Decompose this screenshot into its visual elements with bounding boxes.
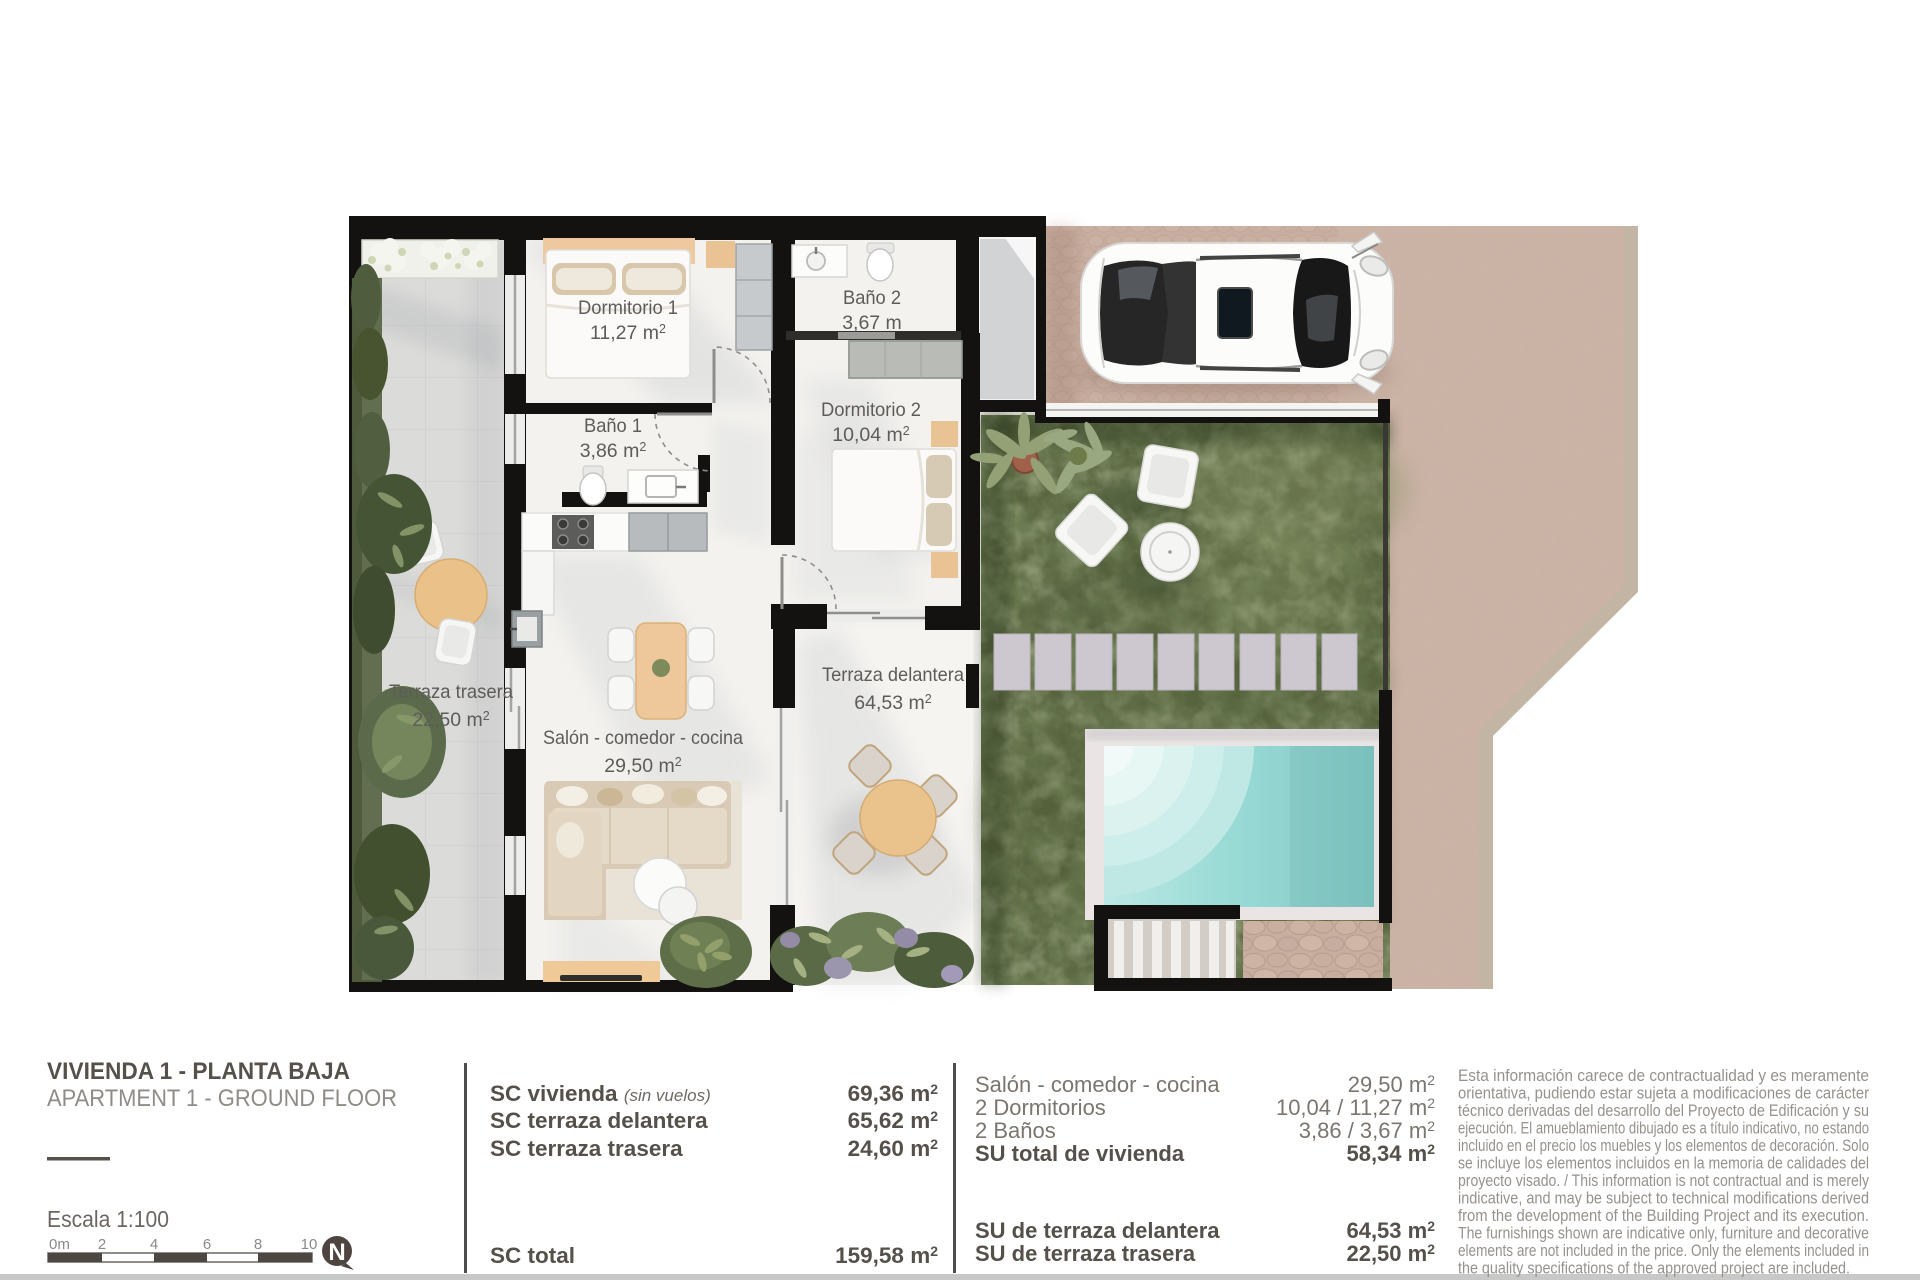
svg-text:2: 2 [98, 1236, 106, 1253]
svg-text:elements are not included in t: elements are not included in the price. … [1458, 1242, 1869, 1260]
svg-text:SC total: SC total [490, 1243, 575, 1268]
svg-text:Terraza delantera: Terraza delantera [822, 664, 964, 686]
svg-text:Terraza trasera: Terraza trasera [389, 681, 513, 703]
svg-text:29,50 m2: 29,50 m2 [604, 755, 681, 777]
svg-text:2 Baños: 2 Baños [975, 1118, 1056, 1143]
svg-text:técnico derivadas del desarrol: técnico derivadas del desarrollo del Pro… [1458, 1102, 1869, 1120]
svg-text:orientativa, pudiendo estar su: orientativa, pudiendo estar sujeta a mod… [1458, 1085, 1870, 1103]
svg-text:64,53 m2: 64,53 m2 [1346, 1218, 1435, 1243]
svg-text:58,34 m2: 58,34 m2 [1346, 1141, 1435, 1166]
svg-text:SU de terraza delantera: SU de terraza delantera [975, 1218, 1220, 1243]
svg-text:The furnishings shown are indi: The furnishings shown are indicative onl… [1458, 1225, 1869, 1243]
svg-text:4: 4 [150, 1236, 158, 1253]
svg-text:69,36 m2: 69,36 m2 [848, 1081, 939, 1106]
svg-text:2 Dormitorios: 2 Dormitorios [975, 1095, 1106, 1120]
svg-text:SC terraza delantera: SC terraza delantera [490, 1108, 708, 1133]
svg-text:22,50 m2: 22,50 m2 [1346, 1241, 1435, 1266]
svg-text:Baño 1: Baño 1 [584, 415, 642, 437]
svg-text:29,50 m2: 29,50 m2 [1348, 1072, 1436, 1097]
svg-text:se incluye los elementos inclu: se incluye los elementos incluidos en la… [1458, 1155, 1869, 1173]
svg-text:24,60 m2: 24,60 m2 [848, 1136, 939, 1161]
svg-text:APARTMENT 1 - GROUND FLOOR: APARTMENT 1 - GROUND FLOOR [47, 1085, 397, 1112]
svg-text:Baño 2: Baño 2 [843, 287, 901, 309]
svg-text:SC terraza trasera: SC terraza trasera [490, 1136, 683, 1161]
svg-text:incluido en el precio los mueb: incluido en el precio los muebles y los … [1458, 1137, 1869, 1155]
svg-text:65,62 m2: 65,62 m2 [848, 1108, 939, 1133]
svg-text:SU de terraza trasera: SU de terraza trasera [975, 1241, 1196, 1266]
svg-text:8: 8 [254, 1236, 262, 1253]
svg-text:Esta información carece de con: Esta información carece de contractualid… [1458, 1067, 1869, 1085]
svg-text:ejecución. El amueblamiento di: ejecución. El amueblamiento dibujado es … [1458, 1120, 1869, 1138]
svg-text:the quality specifications of: the quality specifications of the approv… [1458, 1260, 1850, 1278]
svg-text:Salón - comedor - cocina: Salón - comedor - cocina [543, 727, 743, 749]
svg-text:from the development of the Bu: from the development of the Building Pro… [1458, 1207, 1869, 1225]
svg-text:Salón - comedor - cocina: Salón - comedor - cocina [975, 1072, 1220, 1097]
svg-text:Dormitorio 2: Dormitorio 2 [821, 399, 921, 421]
svg-text:159,58 m2: 159,58 m2 [835, 1243, 938, 1268]
svg-text:3,86 / 3,67 m2: 3,86 / 3,67 m2 [1299, 1118, 1435, 1143]
svg-text:3,86 m2: 3,86 m2 [580, 440, 647, 462]
svg-text:64,53 m2: 64,53 m2 [854, 692, 931, 714]
svg-text:SU total de vivienda: SU total de vivienda [975, 1141, 1185, 1166]
svg-text:6: 6 [203, 1236, 211, 1253]
svg-text:10,04 m2: 10,04 m2 [832, 424, 909, 446]
svg-text:3,67 m: 3,67 m [842, 312, 902, 334]
svg-text:N: N [328, 1239, 345, 1266]
svg-text:Dormitorio 1: Dormitorio 1 [578, 297, 678, 319]
svg-text:indicative, and may be subject: indicative, and may be subject to techni… [1458, 1190, 1869, 1208]
svg-text:Escala 1:100: Escala 1:100 [47, 1206, 169, 1232]
svg-text:11,27 m2: 11,27 m2 [590, 322, 666, 344]
svg-text:proyecto visado. / This inform: proyecto visado. / This information is n… [1458, 1172, 1870, 1190]
svg-text:VIVIENDA 1 - PLANTA BAJA: VIVIENDA 1 - PLANTA BAJA [47, 1058, 350, 1085]
svg-text:10: 10 [301, 1236, 318, 1253]
svg-text:22,50 m2: 22,50 m2 [412, 709, 489, 731]
svg-text:0m: 0m [49, 1236, 70, 1253]
svg-text:10,04 / 11,27 m2: 10,04 / 11,27 m2 [1276, 1095, 1435, 1120]
